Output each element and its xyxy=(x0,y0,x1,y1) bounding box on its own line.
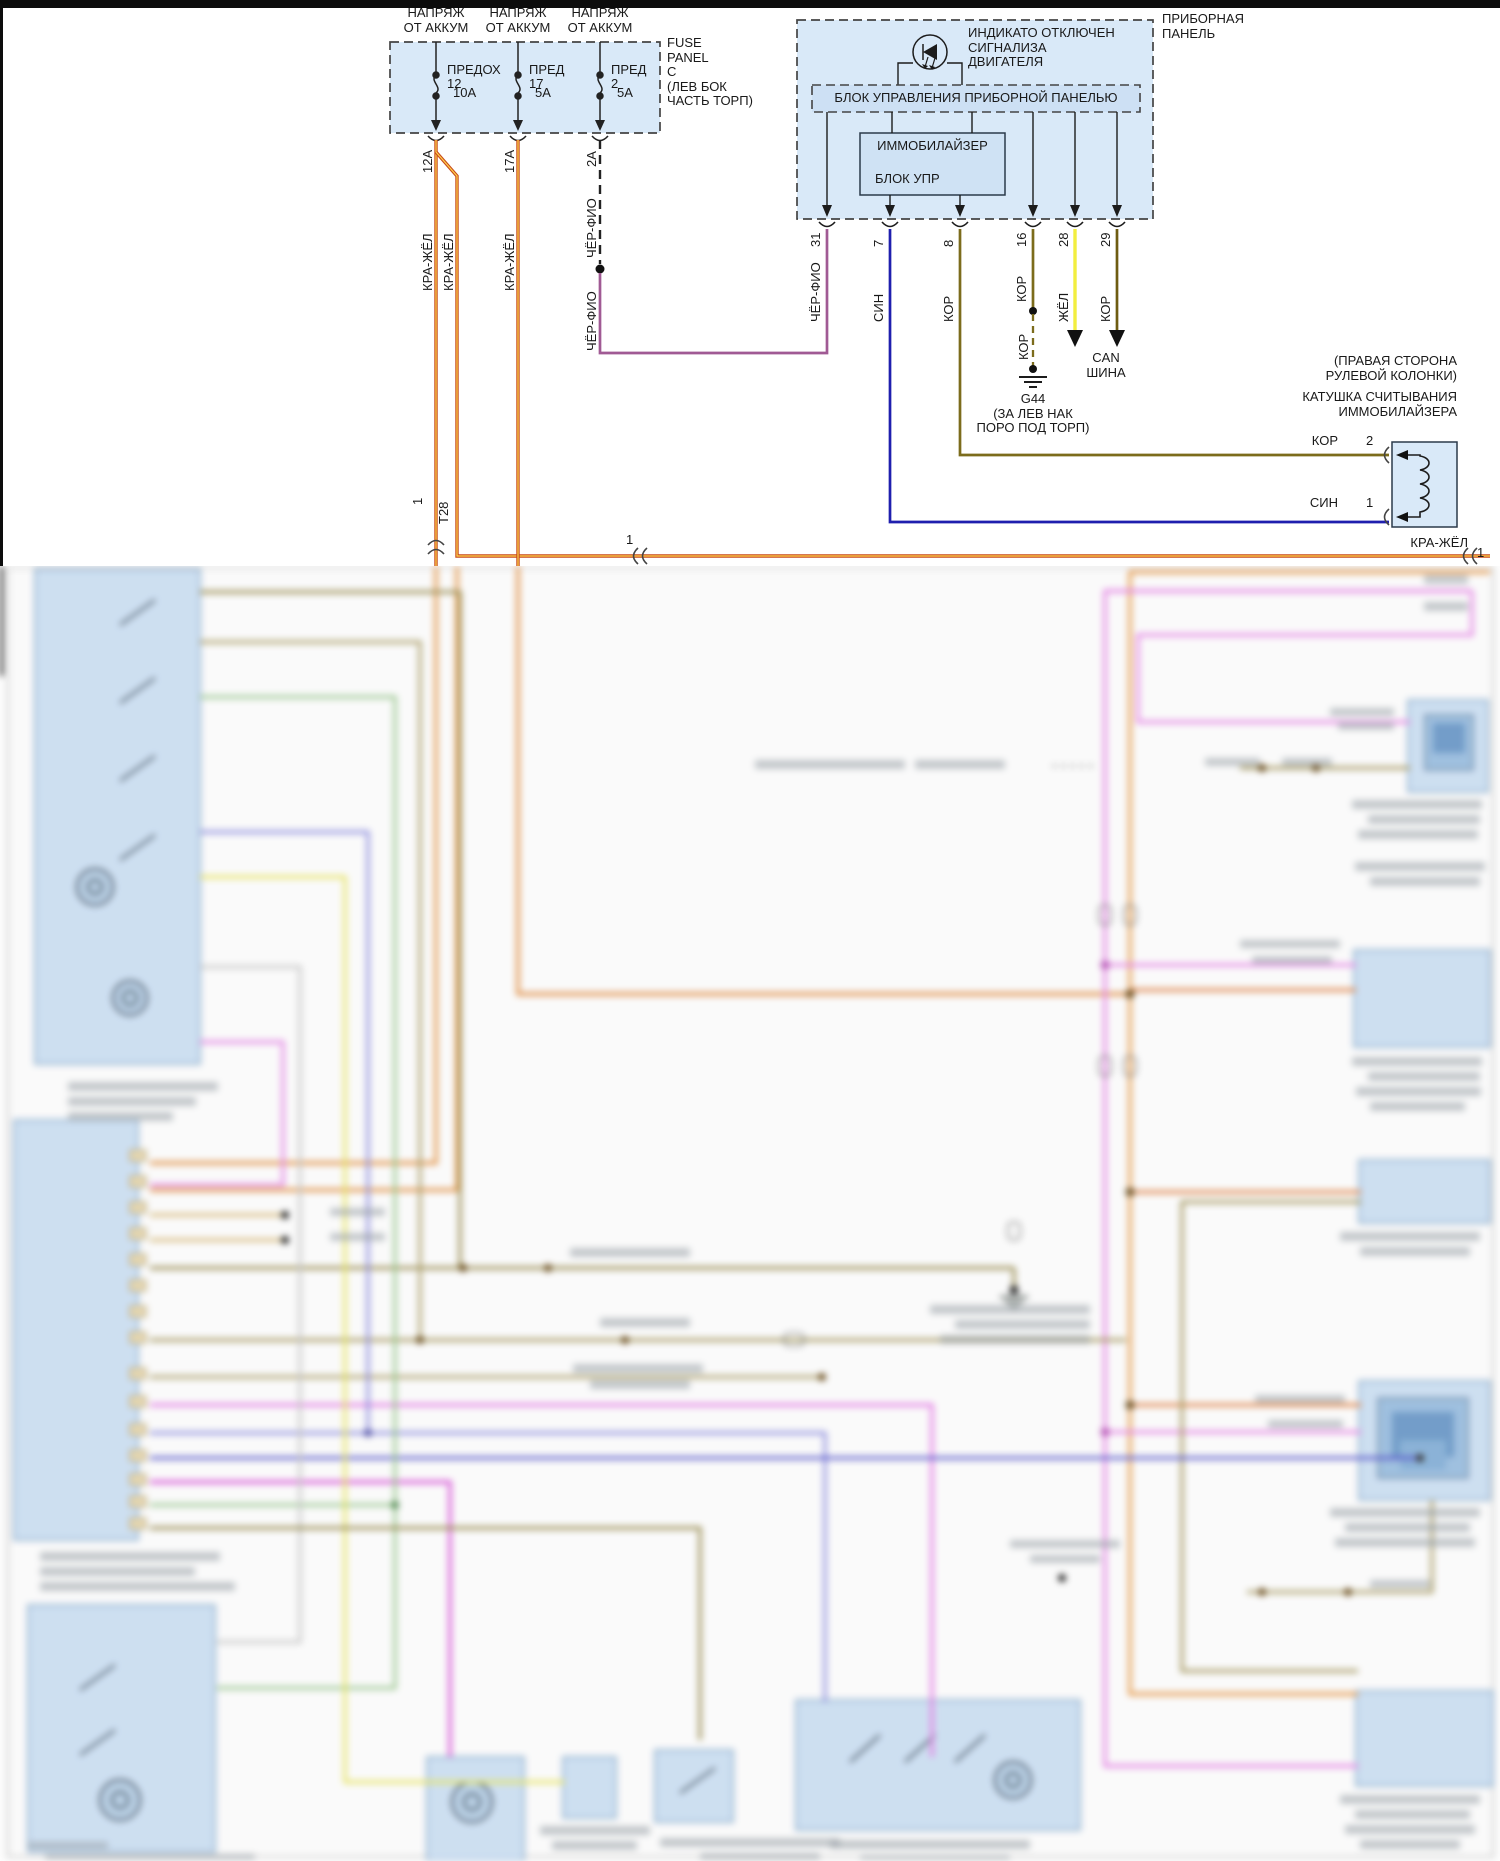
left-border xyxy=(0,8,3,566)
pin28-color: ЖЁЛ xyxy=(1056,293,1071,322)
coil-pin1-color: СИН xyxy=(1250,496,1338,511)
ground-g44-label: G44 (ЗА ЛЕВ НАК ПОРО ПОД ТОРП) xyxy=(913,392,1153,436)
cluster-control-label: БЛОК УПРАВЛЕНИЯ ПРИБОРНОЙ ПАНЕЛЬЮ xyxy=(812,91,1140,106)
mil-indicator-caption: ИНДИКАТО ОТКЛЮЧЕН СИГНАЛИЗА ДВИГАТЕЛЯ xyxy=(968,26,1115,70)
panel-title: ПРИБОРНАЯ ПАНЕЛЬ xyxy=(1162,12,1244,41)
cher-fio-wire xyxy=(596,140,828,353)
wire1b-color-label: КРА-ЖЁЛ xyxy=(441,233,456,291)
pin31-color: ЧЁР-ФИО xyxy=(808,262,823,322)
wire1-color-label: КРА-ЖЁЛ xyxy=(420,233,435,291)
wire2-pin-label: 17А xyxy=(502,150,517,173)
immobilizer-coil-box xyxy=(1385,442,1458,527)
pin28-num: 28 xyxy=(1056,233,1071,247)
fuse-panel-caption: FUSE PANEL C (ЛЕВ БОК ЧАСТЬ ТОРП) xyxy=(667,36,753,109)
wire3-pin-label: 2А xyxy=(584,151,599,167)
coil-pin2-num: 2 xyxy=(1366,434,1373,449)
wire2-color-label: КРА-ЖЁЛ xyxy=(502,233,517,291)
fuse2-amp: 5А xyxy=(535,86,551,101)
can-bus-label: CAN ШИНА xyxy=(1076,351,1136,380)
immobilizer-label: ИММОБИЛАЙЗЕР xyxy=(860,139,1005,154)
coil-location-label: (ПРАВАЯ СТОРОНА РУЛЕВОЙ КОЛОНКИ) xyxy=(1235,354,1457,383)
coil-name-label: КАТУШКА СЧИТЫВАНИЯ ИММОБИЛАЙЗЕРА xyxy=(1195,390,1457,419)
wire3-color-label: ЧЁР-ФИО xyxy=(584,198,599,258)
coil-pin1-num: 1 xyxy=(1366,496,1373,511)
feed-wire-pin: 1 xyxy=(1477,546,1484,561)
t28-pin-label: 1 xyxy=(410,498,425,505)
pin16-ground-wire-label: КОР xyxy=(1016,334,1031,360)
pin8-num: 8 xyxy=(941,240,956,247)
pin7-color: СИН xyxy=(871,294,886,322)
pin16-color: КОР xyxy=(1014,276,1029,302)
fuse1-amp: 10А xyxy=(453,86,476,101)
coil-pin2-color: КОР xyxy=(1250,434,1338,449)
wire3b-color-label: ЧЁР-ФИО xyxy=(584,291,599,351)
pin29-color: КОР xyxy=(1098,296,1113,322)
immobilizer-sublabel: БЛОК УПР xyxy=(875,172,940,187)
pin16-num: 16 xyxy=(1014,233,1029,247)
pin31-num: 31 xyxy=(808,233,823,247)
top-border xyxy=(0,0,1500,8)
feed-wire-color: КРА-ЖЁЛ xyxy=(1360,536,1468,551)
pin8-color: КОР xyxy=(941,296,956,322)
t28-name-label: T28 xyxy=(436,502,451,524)
fuse3-amp: 5А xyxy=(617,86,633,101)
pin7-num: 7 xyxy=(871,240,886,247)
wiring-diagram-page: НАПРЯЖ ОТ АККУМ НАПРЯЖ ОТ АККУМ НАПРЯЖ О… xyxy=(0,0,1500,1861)
pin29-num: 29 xyxy=(1098,233,1113,247)
wire1-pin-label: 12А xyxy=(420,150,435,173)
feed-label-3: НАПРЯЖ ОТ АККУМ xyxy=(552,6,648,35)
splice-pin-label: 1 xyxy=(626,533,633,548)
blurred-lower-diagram xyxy=(0,566,1500,1861)
